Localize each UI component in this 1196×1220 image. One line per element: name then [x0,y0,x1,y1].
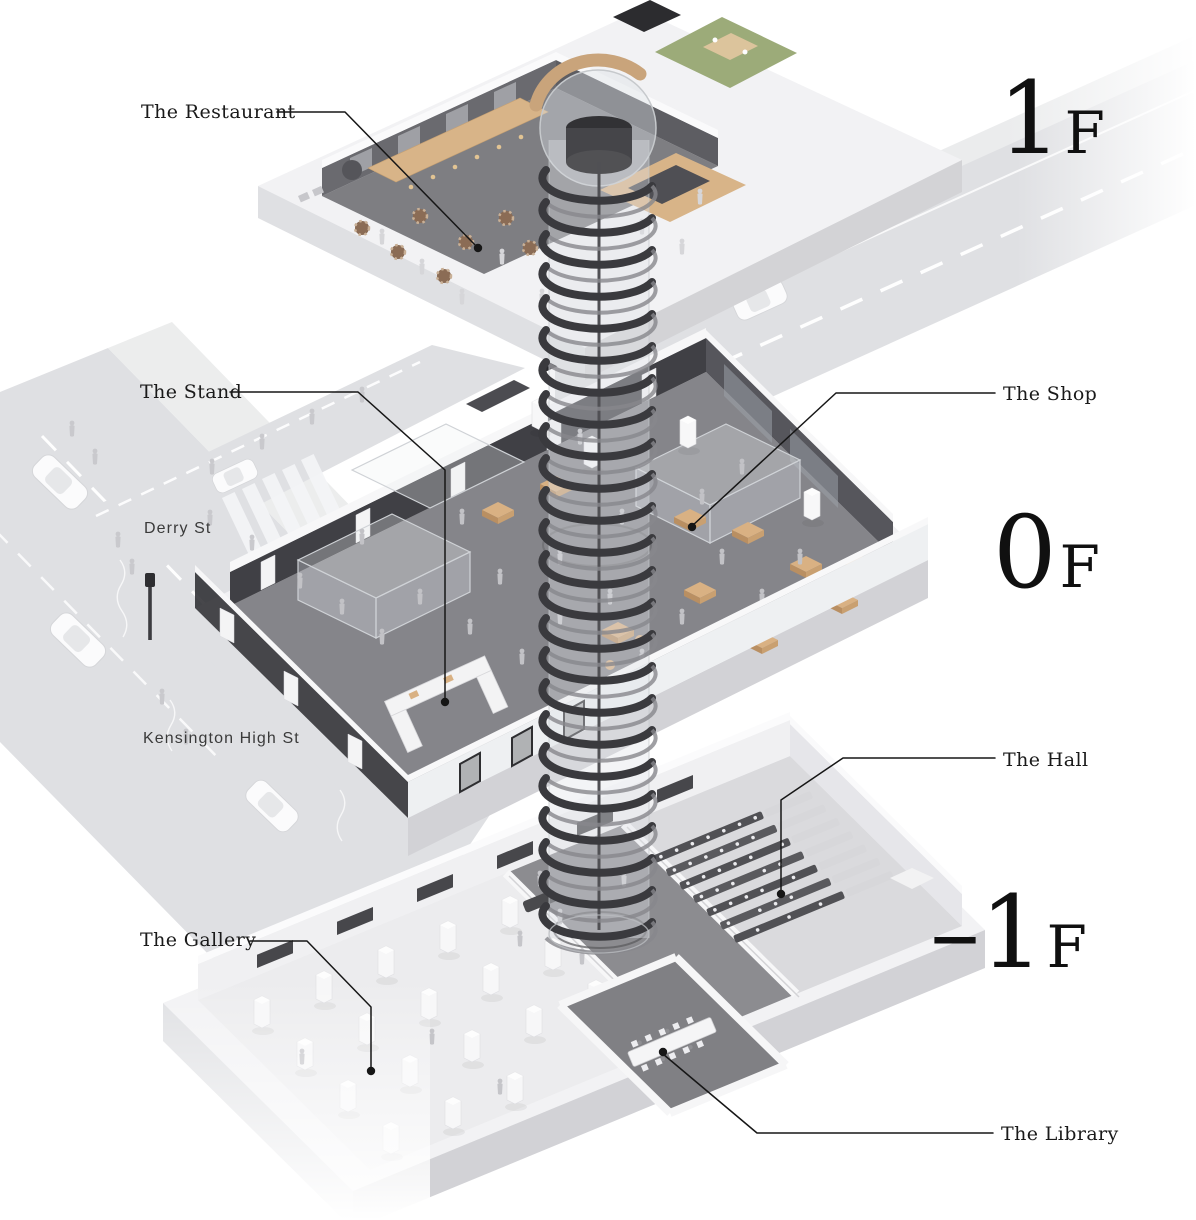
floor-number: 1 [998,60,1062,177]
floor-number: –1 [930,874,1044,991]
leader-dot-restaurant [474,244,482,252]
floor-label-0f: 0F [993,494,1100,611]
road-fade [0,980,430,1220]
label-kensington-high-st: Kensington High St [143,730,300,748]
leader-dot-stand [441,698,449,706]
leader-dot-hall [777,890,785,898]
floor-suffix: F [1065,99,1105,167]
label-gallery: The Gallery [140,929,256,951]
floor-suffix: F [1047,913,1087,981]
label-hall: The Hall [1003,749,1088,771]
floor-label-minus1f: –1F [930,874,1087,991]
label-restaurant: The Restaurant [141,101,296,123]
leader-dot-gallery [367,1067,375,1075]
floor-suffix: F [1060,533,1100,601]
label-derry-st: Derry St [144,520,211,538]
label-stand: The Stand [140,381,242,403]
leader-dot-shop [688,523,696,531]
label-shop: The Shop [1003,383,1097,405]
floor-number: 0 [993,494,1057,611]
floor-diagram: The Restaurant The Stand The Shop The Ha… [0,0,1196,1220]
label-library: The Library [1001,1123,1119,1145]
leader-dot-library [659,1048,667,1056]
spiral-staircase [542,116,655,953]
floor-label-1f: 1F [998,60,1105,177]
